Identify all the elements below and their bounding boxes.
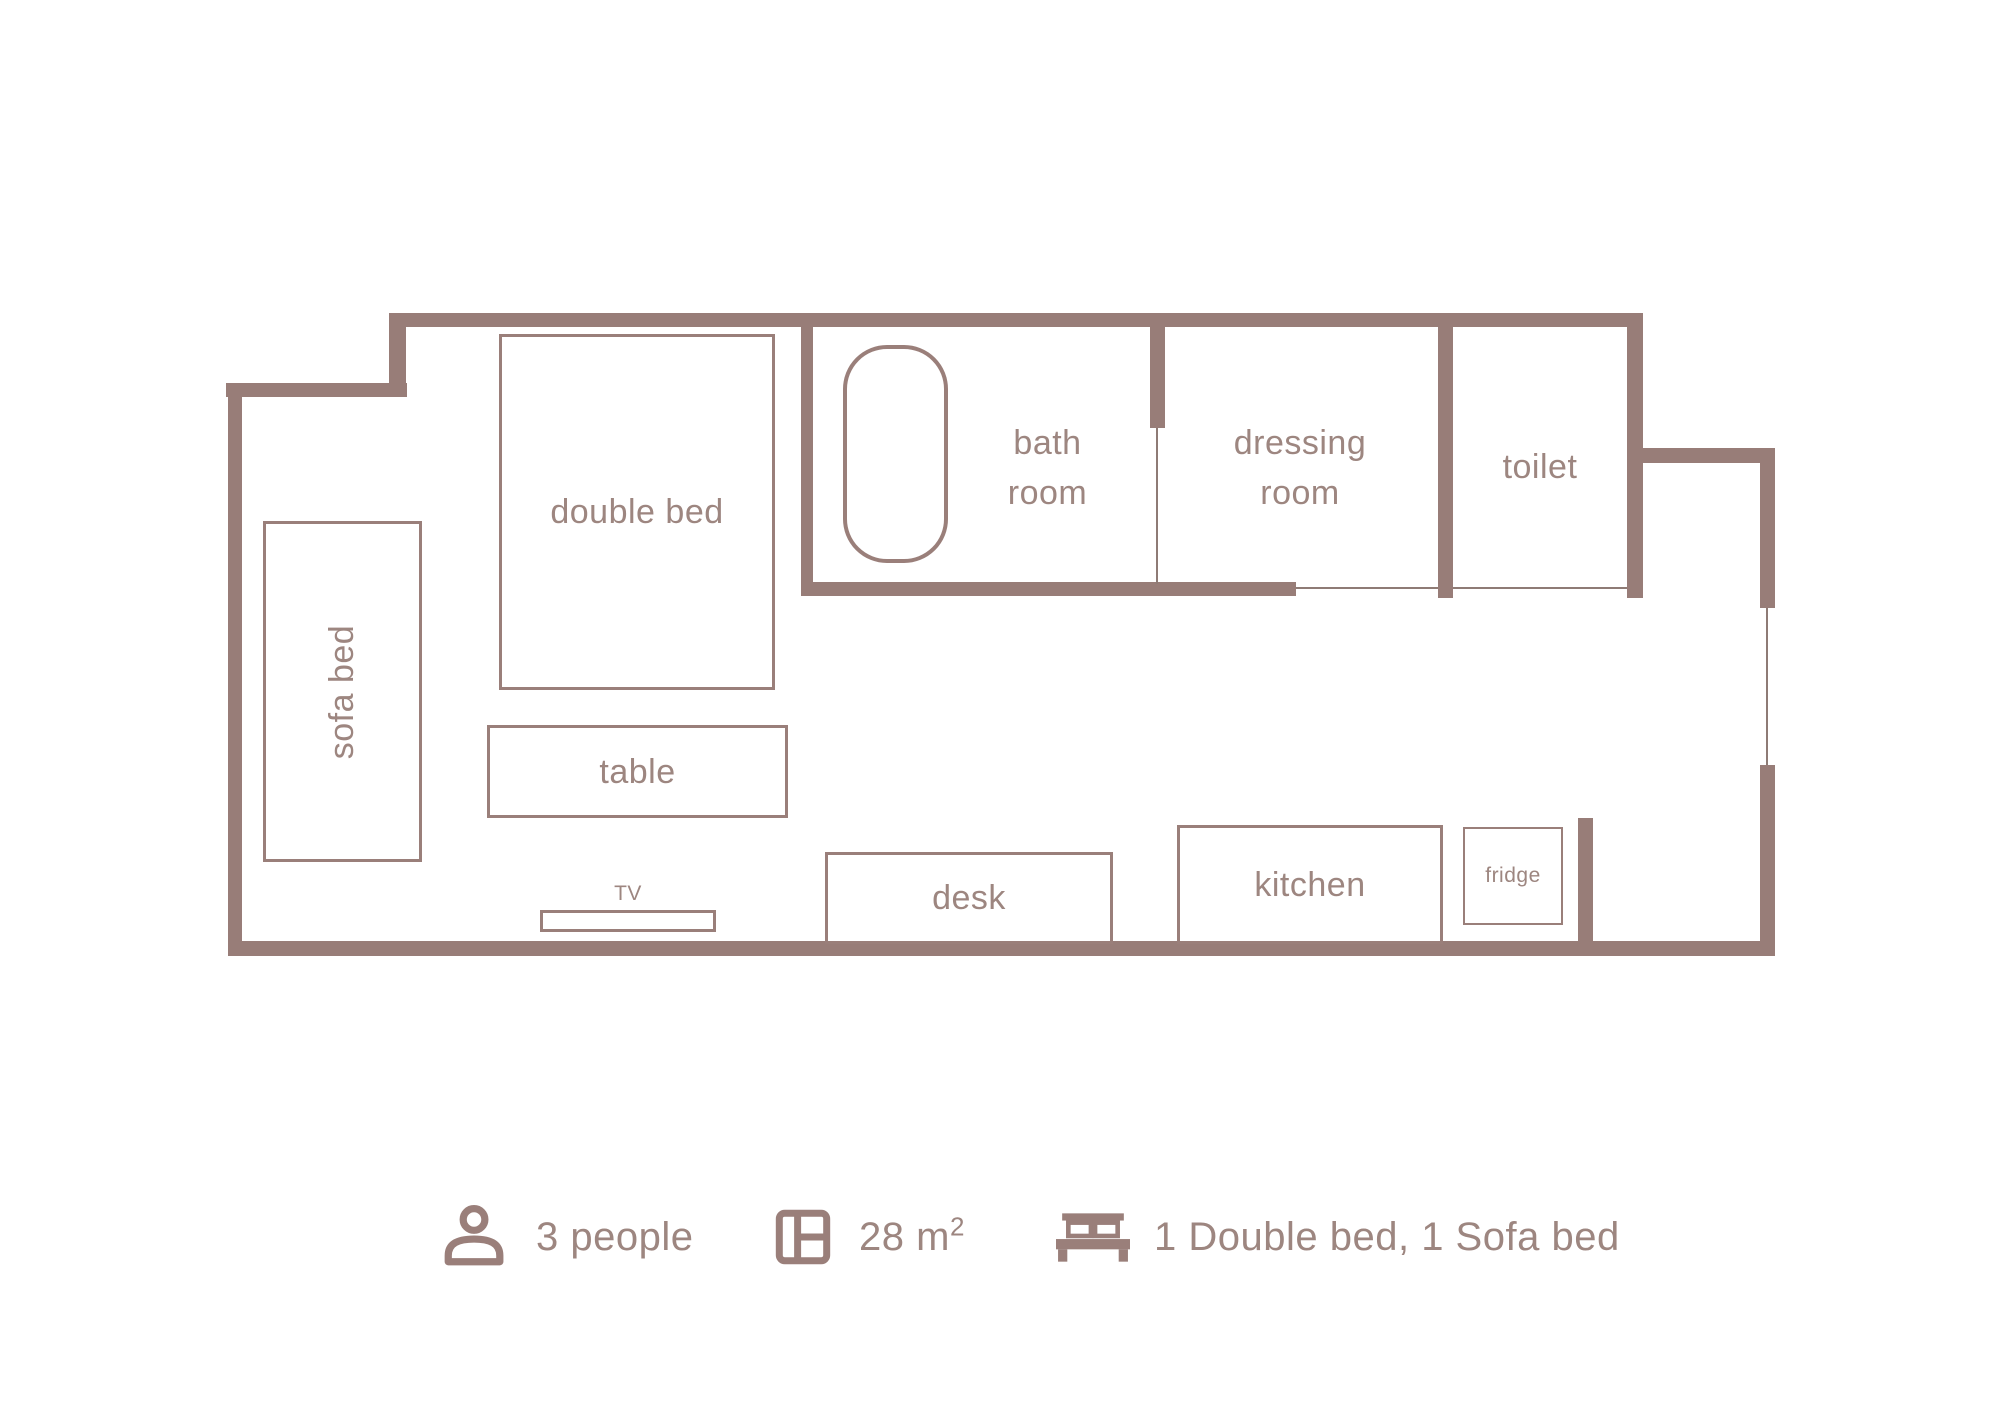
table-label: table	[599, 747, 675, 797]
table: table	[487, 725, 788, 818]
double-bed-label: double bed	[550, 487, 723, 537]
wall-entry-top	[1643, 448, 1773, 463]
wall-bedroom-bathroom	[801, 320, 813, 595]
toilet-label: toilet	[1460, 437, 1620, 497]
wall-bath-dressing-stub	[1150, 320, 1165, 428]
wall-toilet-right	[1627, 313, 1643, 598]
wall-dressing-toilet	[1438, 320, 1453, 598]
sofa-bed-label: sofa bed	[317, 624, 367, 758]
desk: desk	[825, 852, 1113, 944]
fridge: fridge	[1463, 827, 1563, 925]
person-icon	[440, 1203, 506, 1271]
bathtub-icon	[843, 345, 948, 563]
tv-label: TV	[540, 882, 716, 906]
bed-icon	[1056, 1212, 1130, 1262]
area-icon	[775, 1209, 831, 1265]
area-info: 28 m2	[775, 1200, 965, 1274]
wall-fridge-stub	[1578, 818, 1593, 941]
beds-text: 1 Double bed, 1 Sofa bed	[1154, 1215, 1620, 1260]
desk-label: desk	[932, 873, 1006, 923]
sofa-bed: sofa bed	[263, 521, 422, 862]
wall-step-ledge	[226, 383, 407, 397]
tv	[540, 910, 716, 932]
capacity-text: 3 people	[536, 1215, 693, 1260]
kitchen-label: kitchen	[1254, 860, 1365, 910]
fridge-label: fridge	[1485, 864, 1541, 888]
door-line-toilet	[1453, 587, 1627, 589]
door-line-dressing	[1296, 587, 1438, 589]
door-line-bath-dressing	[1156, 428, 1158, 584]
beds-info: 1 Double bed, 1 Sofa bed	[1056, 1200, 1620, 1274]
wall-top	[389, 313, 1643, 327]
door-line-entrance	[1766, 608, 1768, 765]
area-text: 28 m2	[859, 1215, 965, 1260]
kitchen: kitchen	[1177, 825, 1443, 944]
wall-bathroom-bottom	[801, 582, 1296, 596]
double-bed: double bed	[499, 334, 775, 690]
dressing-room-label: dressing room	[1200, 408, 1400, 528]
capacity-info: 3 people	[440, 1200, 693, 1274]
wall-right-upper	[1760, 448, 1775, 608]
wall-left	[228, 383, 242, 956]
wall-right-lower	[1760, 765, 1775, 956]
bath-room-label: bath room	[960, 408, 1135, 528]
floor-plan-page: sofa bed double bed table TV desk kitche…	[0, 0, 2000, 1414]
